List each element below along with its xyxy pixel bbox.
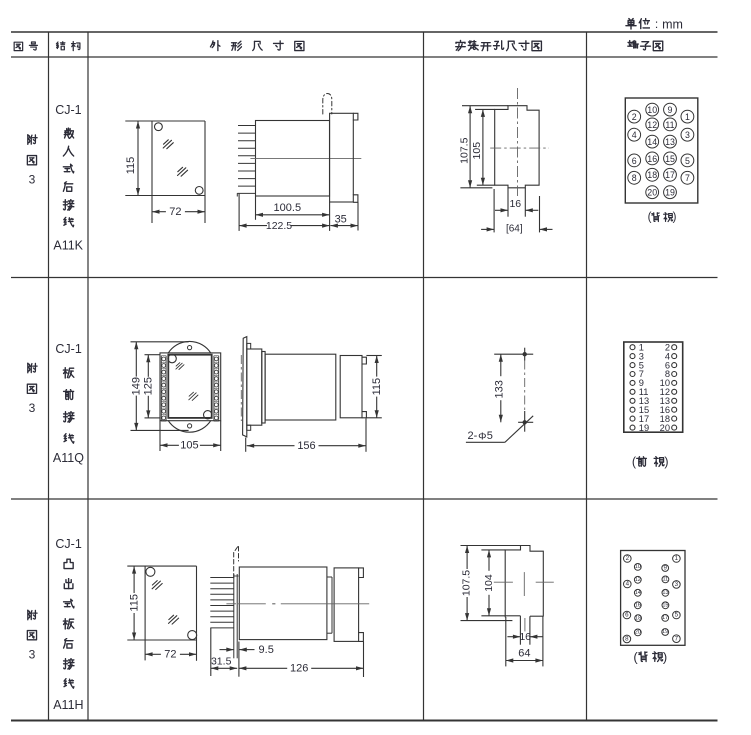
svg-text:3: 3: [675, 581, 679, 588]
svg-text:20: 20: [647, 188, 657, 198]
svg-text:10: 10: [635, 564, 641, 570]
svg-text:15: 15: [662, 603, 668, 609]
svg-text:3: 3: [685, 130, 690, 140]
svg-text:(: (: [633, 650, 638, 665]
svg-text:Φ: Φ: [478, 431, 486, 443]
svg-text:105: 105: [180, 440, 198, 452]
svg-text:6: 6: [625, 612, 629, 619]
svg-text:A11Q: A11Q: [53, 451, 84, 465]
svg-text:): ): [673, 211, 677, 223]
svg-text:126: 126: [290, 663, 308, 675]
svg-text:19: 19: [662, 629, 668, 635]
svg-text:20: 20: [660, 423, 670, 433]
svg-text:1: 1: [675, 555, 679, 562]
svg-text:mm: mm: [662, 17, 683, 31]
svg-text:1: 1: [685, 112, 690, 122]
svg-text:104: 104: [483, 574, 495, 592]
svg-text:CJ-1: CJ-1: [55, 342, 81, 356]
svg-text:149: 149: [131, 377, 143, 395]
svg-text:72: 72: [164, 649, 176, 661]
svg-text:125: 125: [143, 377, 155, 395]
svg-text:12: 12: [647, 120, 657, 130]
svg-text:13: 13: [665, 137, 675, 147]
svg-text:115: 115: [371, 378, 383, 396]
svg-text:18: 18: [635, 615, 641, 621]
svg-text:A11H: A11H: [53, 698, 83, 712]
svg-text:16: 16: [509, 198, 521, 210]
svg-text:7: 7: [685, 173, 690, 183]
svg-text:18: 18: [647, 170, 657, 180]
svg-text:15: 15: [665, 154, 675, 164]
svg-text:5: 5: [487, 430, 493, 442]
svg-text:72: 72: [169, 206, 181, 218]
svg-text:11: 11: [663, 577, 669, 583]
svg-text:16: 16: [647, 154, 657, 164]
svg-text:(: (: [648, 211, 652, 223]
svg-text::: :: [655, 17, 658, 31]
svg-text:2: 2: [632, 112, 637, 122]
svg-text:16: 16: [519, 631, 531, 643]
svg-text:6: 6: [632, 156, 637, 166]
svg-text:14: 14: [635, 590, 641, 596]
svg-text:100.5: 100.5: [274, 202, 302, 214]
svg-text:3: 3: [29, 647, 36, 661]
svg-text:(: (: [632, 455, 637, 469]
svg-text:8: 8: [632, 173, 637, 183]
svg-text:35: 35: [335, 213, 347, 225]
svg-text:12: 12: [635, 577, 641, 583]
svg-text:14: 14: [647, 137, 657, 147]
svg-text:2: 2: [626, 555, 630, 562]
svg-text:107.5: 107.5: [461, 570, 473, 596]
svg-text:): ): [663, 650, 667, 665]
svg-text:115: 115: [125, 157, 137, 175]
svg-text:13: 13: [662, 590, 668, 596]
svg-text:9: 9: [668, 105, 673, 115]
svg-text:): ): [664, 455, 668, 469]
svg-text:11: 11: [665, 120, 674, 130]
svg-text:64: 64: [518, 648, 530, 660]
svg-text:CJ-1: CJ-1: [55, 103, 81, 117]
svg-text:A11K: A11K: [53, 239, 83, 253]
svg-text:19: 19: [665, 188, 675, 198]
svg-text:107.5: 107.5: [458, 137, 470, 163]
svg-text:8: 8: [625, 636, 629, 643]
svg-text:7: 7: [675, 635, 679, 642]
svg-text:10: 10: [647, 105, 657, 115]
svg-text:5: 5: [685, 156, 690, 166]
svg-text:19: 19: [639, 423, 649, 433]
svg-text:156: 156: [297, 440, 315, 452]
svg-text:9: 9: [663, 565, 667, 572]
svg-text:115: 115: [128, 594, 140, 612]
svg-text:[64]: [64]: [506, 224, 523, 235]
svg-text:17: 17: [665, 170, 675, 180]
svg-text:20: 20: [635, 630, 641, 636]
svg-text:4: 4: [626, 581, 630, 588]
svg-text:3: 3: [29, 173, 36, 187]
svg-text:4: 4: [632, 130, 637, 140]
svg-text:3: 3: [29, 401, 36, 415]
svg-text:133: 133: [494, 380, 506, 398]
svg-text:2-: 2-: [468, 430, 478, 442]
svg-text:122.5: 122.5: [266, 220, 292, 232]
svg-text:16: 16: [635, 603, 641, 609]
svg-text:17: 17: [662, 615, 668, 621]
svg-text:9.5: 9.5: [259, 644, 274, 656]
svg-text:5: 5: [675, 612, 679, 619]
svg-text:CJ-1: CJ-1: [55, 537, 81, 551]
svg-text:105: 105: [471, 142, 483, 160]
svg-text:31.5: 31.5: [211, 655, 232, 667]
